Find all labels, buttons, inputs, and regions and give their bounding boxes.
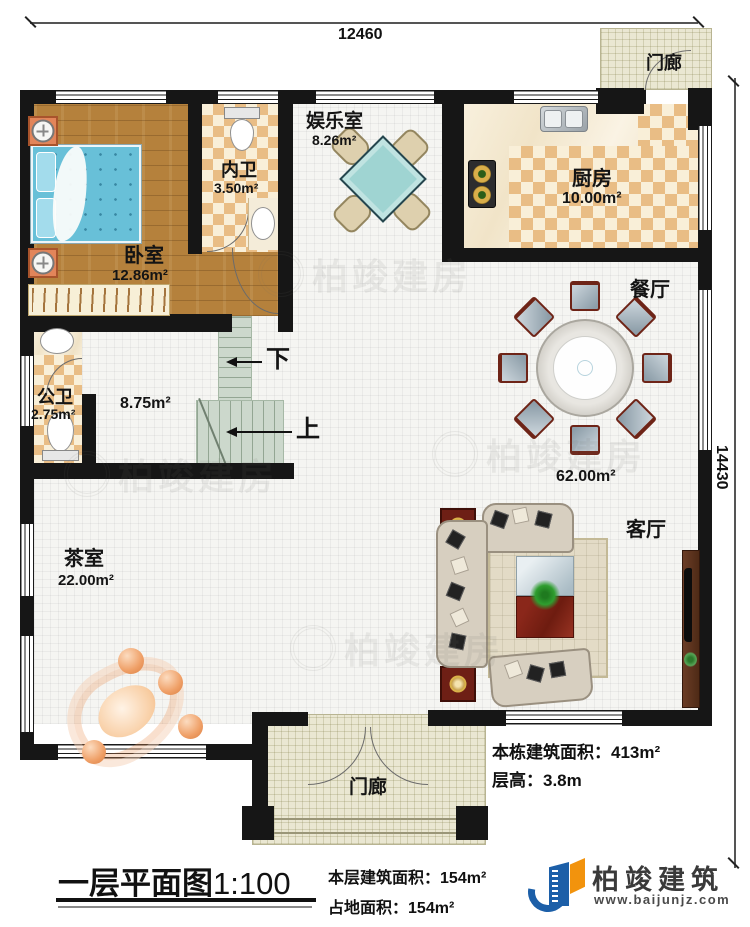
height-value: 3.8m [543, 771, 582, 790]
title-underline-thin [58, 906, 312, 908]
entertainment-area: 8.26m² [312, 133, 356, 147]
stair-up-label: 上 [296, 418, 320, 442]
floor-area-value: 154m² [440, 870, 486, 887]
wall-porchtop-left [596, 88, 644, 114]
bedroom-label: 卧室 [124, 246, 164, 266]
tearoom-pebble [178, 714, 203, 739]
stair-down-label: 下 [266, 348, 290, 372]
floor-area-note: 本层建筑面积：154m² [328, 864, 486, 888]
kitchen-label: 厨房 [572, 169, 612, 189]
logo-website: www.baijunjz.com [594, 892, 730, 907]
wall-porch-left [252, 712, 268, 808]
plan-title-text: 一层平面图 [58, 866, 213, 901]
window-top-bedroom [56, 90, 166, 104]
tearoom-area: 22.00m² [58, 573, 114, 588]
wardrobe-hangers [32, 288, 166, 312]
plan-title: 一层平面图1:100 [58, 858, 291, 903]
dining-chair [570, 425, 600, 455]
sofa-pillow [449, 633, 467, 651]
wall-publicbath-right [82, 394, 96, 464]
company-logo: 柏竣建筑 www.baijunjz.com [526, 854, 736, 916]
sofa-pillow [549, 661, 566, 678]
tearoom-pebble [118, 648, 144, 674]
window-bottom-living [506, 710, 622, 726]
wall-stair-bottom [20, 463, 294, 479]
living-label: 客厅 [626, 520, 666, 540]
wall-bedroom-right [278, 104, 293, 332]
storey-height-note: 层高：3.8m [492, 766, 582, 791]
publicbath-toilet-tank [42, 450, 79, 461]
dining-label: 餐厅 [630, 280, 670, 300]
dimension-top-value: 12460 [338, 26, 383, 44]
ensuite-label: 内卫 [221, 161, 257, 179]
logo-building-orange-icon [570, 858, 585, 894]
footprint-note: 占地面积：154m² [328, 894, 454, 918]
porch-pillar [456, 806, 488, 840]
title-underline-thick [56, 898, 316, 902]
total-area-label: 本栋建筑面积： [492, 743, 611, 762]
window-top-kitchen [514, 90, 598, 104]
stair-down-arrowhead [226, 357, 237, 367]
window-left-tearoom2 [20, 636, 34, 732]
sofa-pillow [512, 507, 530, 525]
porch-step-line [253, 818, 485, 820]
tv-screen [684, 568, 692, 642]
dining-chair [642, 353, 672, 383]
wall-kitchen-bottom [442, 248, 712, 262]
footprint-value: 154m² [408, 900, 454, 917]
kitchen-sink-basin [544, 110, 562, 128]
wall-porchtop-right [688, 88, 712, 130]
floor-plan-canvas: 下 上 [0, 0, 750, 927]
entertainment-label: 娱乐室 [306, 112, 363, 131]
porch-bottom-label: 门廊 [349, 778, 387, 797]
window-top-ensuite [218, 90, 278, 104]
floor-area-label: 本层建筑面积： [328, 870, 440, 887]
footprint-label: 占地面积： [328, 900, 408, 917]
porch-step-line [253, 832, 485, 834]
dining-chair [498, 353, 528, 383]
window-left-tearoom [20, 524, 34, 596]
kitchen-area: 10.00m² [562, 191, 622, 207]
plan-title-scale: 1:100 [213, 866, 291, 901]
stove-burner [473, 165, 491, 183]
wall-bottom-stub [268, 712, 308, 726]
bedroom-area: 12.86m² [112, 268, 168, 283]
publicbath-area: 2.75m² [31, 407, 75, 421]
ensuite-sink [251, 207, 275, 240]
ensuite-area: 3.50m² [214, 181, 258, 195]
logo-building-windows [552, 870, 558, 902]
wall-kitchen-left [442, 90, 464, 262]
wall-ensuite-left [188, 104, 202, 254]
nightstand [28, 248, 58, 278]
toilet-tank [224, 107, 260, 119]
porch-pillar [242, 806, 274, 840]
stairhall-area: 8.75m² [120, 396, 171, 412]
publicbath-label: 公卫 [37, 388, 73, 406]
kitchen-sink-basin [565, 110, 583, 128]
porch-top-label: 门廊 [646, 54, 682, 72]
total-area-note: 本栋建筑面积：413m² [492, 738, 660, 763]
publicbath-sink [40, 328, 74, 354]
tearoom-label: 茶室 [64, 549, 104, 569]
dimension-line-top [30, 22, 698, 24]
stair-down-arrow [236, 361, 262, 363]
dining-table-center [577, 360, 593, 376]
bed-pillow [36, 152, 56, 192]
total-area-value: 413m² [611, 743, 660, 762]
side-table [440, 666, 476, 702]
stair-up-arrowhead [226, 427, 237, 437]
dining-chair [570, 281, 600, 311]
window-right-dining [698, 290, 712, 450]
nightstand [28, 116, 58, 146]
tv-plant [684, 652, 697, 667]
window-right-kitchen [698, 126, 712, 230]
dimension-right-value: 14430 [712, 445, 730, 490]
coffee-table-plant [530, 580, 560, 610]
greathall-area: 62.00m² [556, 469, 616, 485]
stove-burner [473, 186, 491, 204]
window-top-entertainment [316, 90, 434, 104]
tearoom-pebble [82, 740, 106, 764]
stair-up-arrow [236, 431, 292, 433]
tearoom-pebble [158, 670, 183, 695]
height-label: 层高： [492, 771, 543, 790]
dimension-line-right [734, 78, 736, 868]
